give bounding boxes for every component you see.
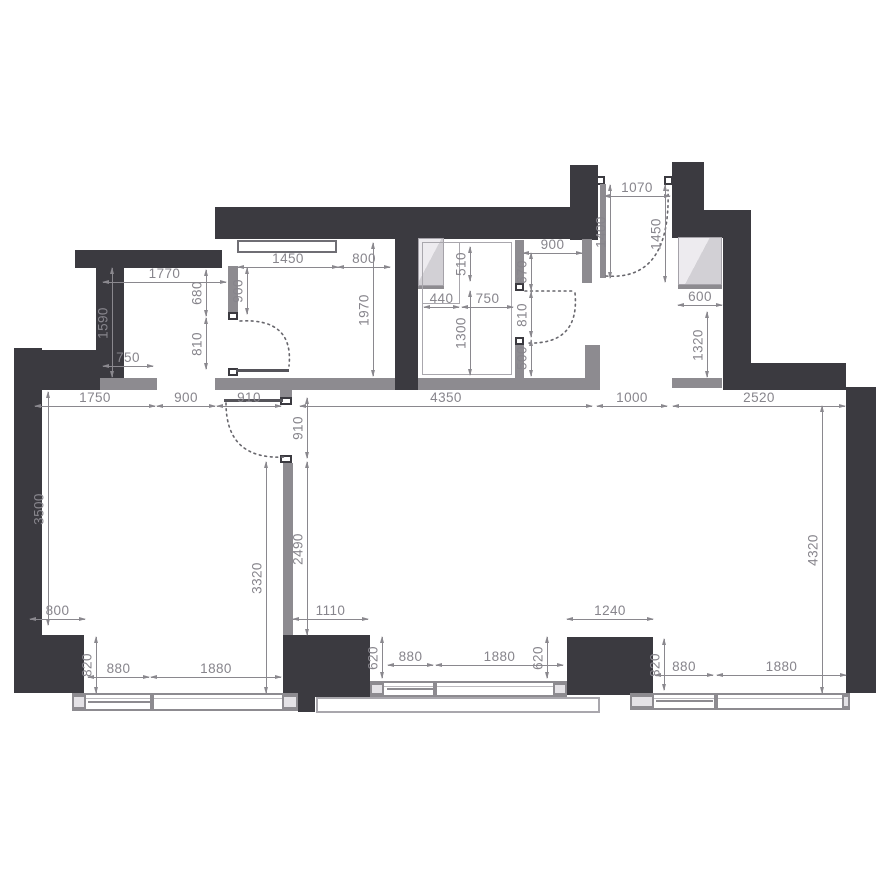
door-swing-arcs [0, 0, 880, 880]
dim-partition-length: 2490 [307, 462, 308, 635]
door-arc-bath [527, 293, 575, 343]
dim-chain-900: 900 [157, 406, 215, 407]
wall-east-strip [723, 238, 751, 366]
dim-closet-height: 1590 [112, 268, 113, 377]
dim-closet-door: 810 [206, 318, 207, 369]
window-mullion [150, 695, 154, 709]
window-end-cap [282, 695, 298, 709]
shaft-entrance [678, 237, 722, 285]
dim-sill-center-right: 620 [547, 637, 548, 678]
dim-bath-door-top: 670 [531, 253, 532, 290]
window-right [630, 693, 850, 710]
dim-dining-height: 4320 [822, 406, 823, 693]
wall-east [846, 387, 876, 693]
dim-sill-southwest: 820 [96, 637, 97, 693]
window-inner-line [370, 686, 567, 687]
window-sash-midline [387, 688, 433, 690]
pier-center-left [283, 635, 370, 697]
dim-window-left-small: 880 [88, 677, 149, 678]
window-inner-line [630, 698, 850, 699]
window-end-cap [842, 695, 850, 708]
partition-band-mid [215, 378, 395, 390]
dim-window-left-big: 1880 [151, 677, 281, 678]
pier-balcony-tab [298, 697, 315, 712]
dim-chain-1750: 1750 [35, 406, 155, 407]
dim-window-right-big: 1880 [717, 675, 846, 676]
window-mullion [714, 695, 718, 708]
dim-wardrobe-right: 800 [338, 267, 390, 268]
balcony-outline [316, 697, 600, 713]
door-jamb [515, 283, 524, 291]
window-center [370, 681, 567, 697]
wall-west-band [14, 376, 100, 390]
partition-hall-stub [585, 345, 600, 378]
dim-pier-sw: 800 [30, 619, 85, 620]
window-end-cap [370, 683, 384, 695]
wall-northeast-horizontal [723, 363, 846, 390]
door-leaf-closet [236, 369, 289, 372]
wall-northeast-block [704, 210, 751, 238]
door-arc-910 [226, 403, 284, 457]
dim-chain-1000: 1000 [597, 406, 667, 407]
window-left [72, 693, 298, 711]
dim-entry-leaf: 1400 [610, 185, 611, 278]
partition-band-left [100, 378, 157, 390]
dim-entry-width: 1070 [604, 196, 670, 197]
dim-niche-width: 600 [678, 305, 722, 306]
floor-plan-canvas: 1770 750 1450 800 440 750 900 1070 600 1… [0, 0, 880, 880]
dim-pier-center: 1110 [293, 619, 368, 620]
window-sash-midline [88, 701, 150, 703]
dim-bath-niche-height: 510 [470, 247, 471, 281]
window-mullion [433, 683, 437, 695]
wall-top-north [215, 207, 587, 239]
dim-niche-height: 1320 [707, 312, 708, 377]
dim-sill-southeast: 820 [664, 639, 665, 690]
partition-niche-sill [672, 378, 722, 388]
pier-southwest [14, 635, 84, 693]
dim-wardrobe-wall: 900 [247, 268, 248, 314]
dim-chain-910: 910 [217, 406, 281, 407]
partition-entry-left-pillar [582, 239, 592, 283]
dim-pier-center-right: 1240 [567, 619, 653, 620]
dim-bath-length: 1300 [470, 291, 471, 375]
dim-sill-center-left: 620 [382, 637, 383, 678]
dim-entry-depth: 1450 [665, 185, 666, 282]
dim-bath-niche-width: 440 [424, 307, 459, 308]
dim-chain-4350: 4350 [300, 406, 592, 407]
dim-bath-door-bottom: 500 [531, 340, 532, 376]
dim-wardrobe-left: 1450 [238, 267, 338, 268]
wall-west [14, 348, 42, 635]
dim-living-height: 3500 [48, 392, 49, 625]
dim-closet-width: 1770 [103, 282, 226, 283]
door-jamb [228, 312, 238, 320]
window-end-cap [72, 695, 86, 709]
door-arc-closet [240, 321, 289, 366]
entrance-pillar-right [672, 162, 704, 238]
dim-door-910: 910 [307, 398, 308, 458]
wall-wardrobe-bath-divider [395, 238, 418, 390]
dim-closet-door-top: 680 [206, 270, 207, 316]
partition-band-right [418, 378, 600, 390]
window-sash-midline [656, 700, 713, 702]
dim-wardrobe-depth: 1970 [373, 243, 374, 376]
door-jamb [280, 455, 292, 463]
window-end-cap [553, 683, 567, 695]
door-jamb [515, 337, 524, 345]
window-inner-line [72, 698, 298, 699]
window-end-cap [630, 695, 654, 708]
dim-bath-door: 810 [531, 292, 532, 337]
pier-center-right [567, 637, 653, 695]
dim-closet-inner: 750 [103, 366, 153, 367]
dim-window-center-small: 880 [388, 665, 433, 666]
dim-living-width: 3320 [266, 462, 267, 693]
